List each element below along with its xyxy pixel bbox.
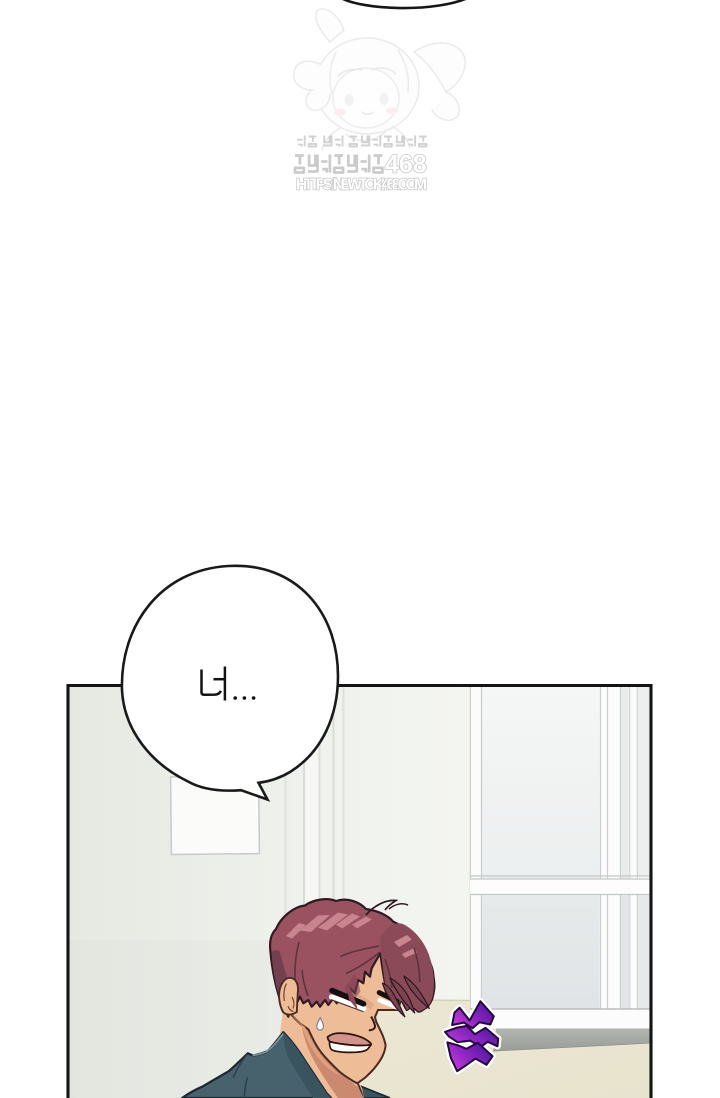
svg-text:468: 468 bbox=[385, 151, 427, 179]
svg-text:HTTPS://NEWTOKI468.COM: HTTPS://NEWTOKI468.COM bbox=[296, 177, 427, 194]
